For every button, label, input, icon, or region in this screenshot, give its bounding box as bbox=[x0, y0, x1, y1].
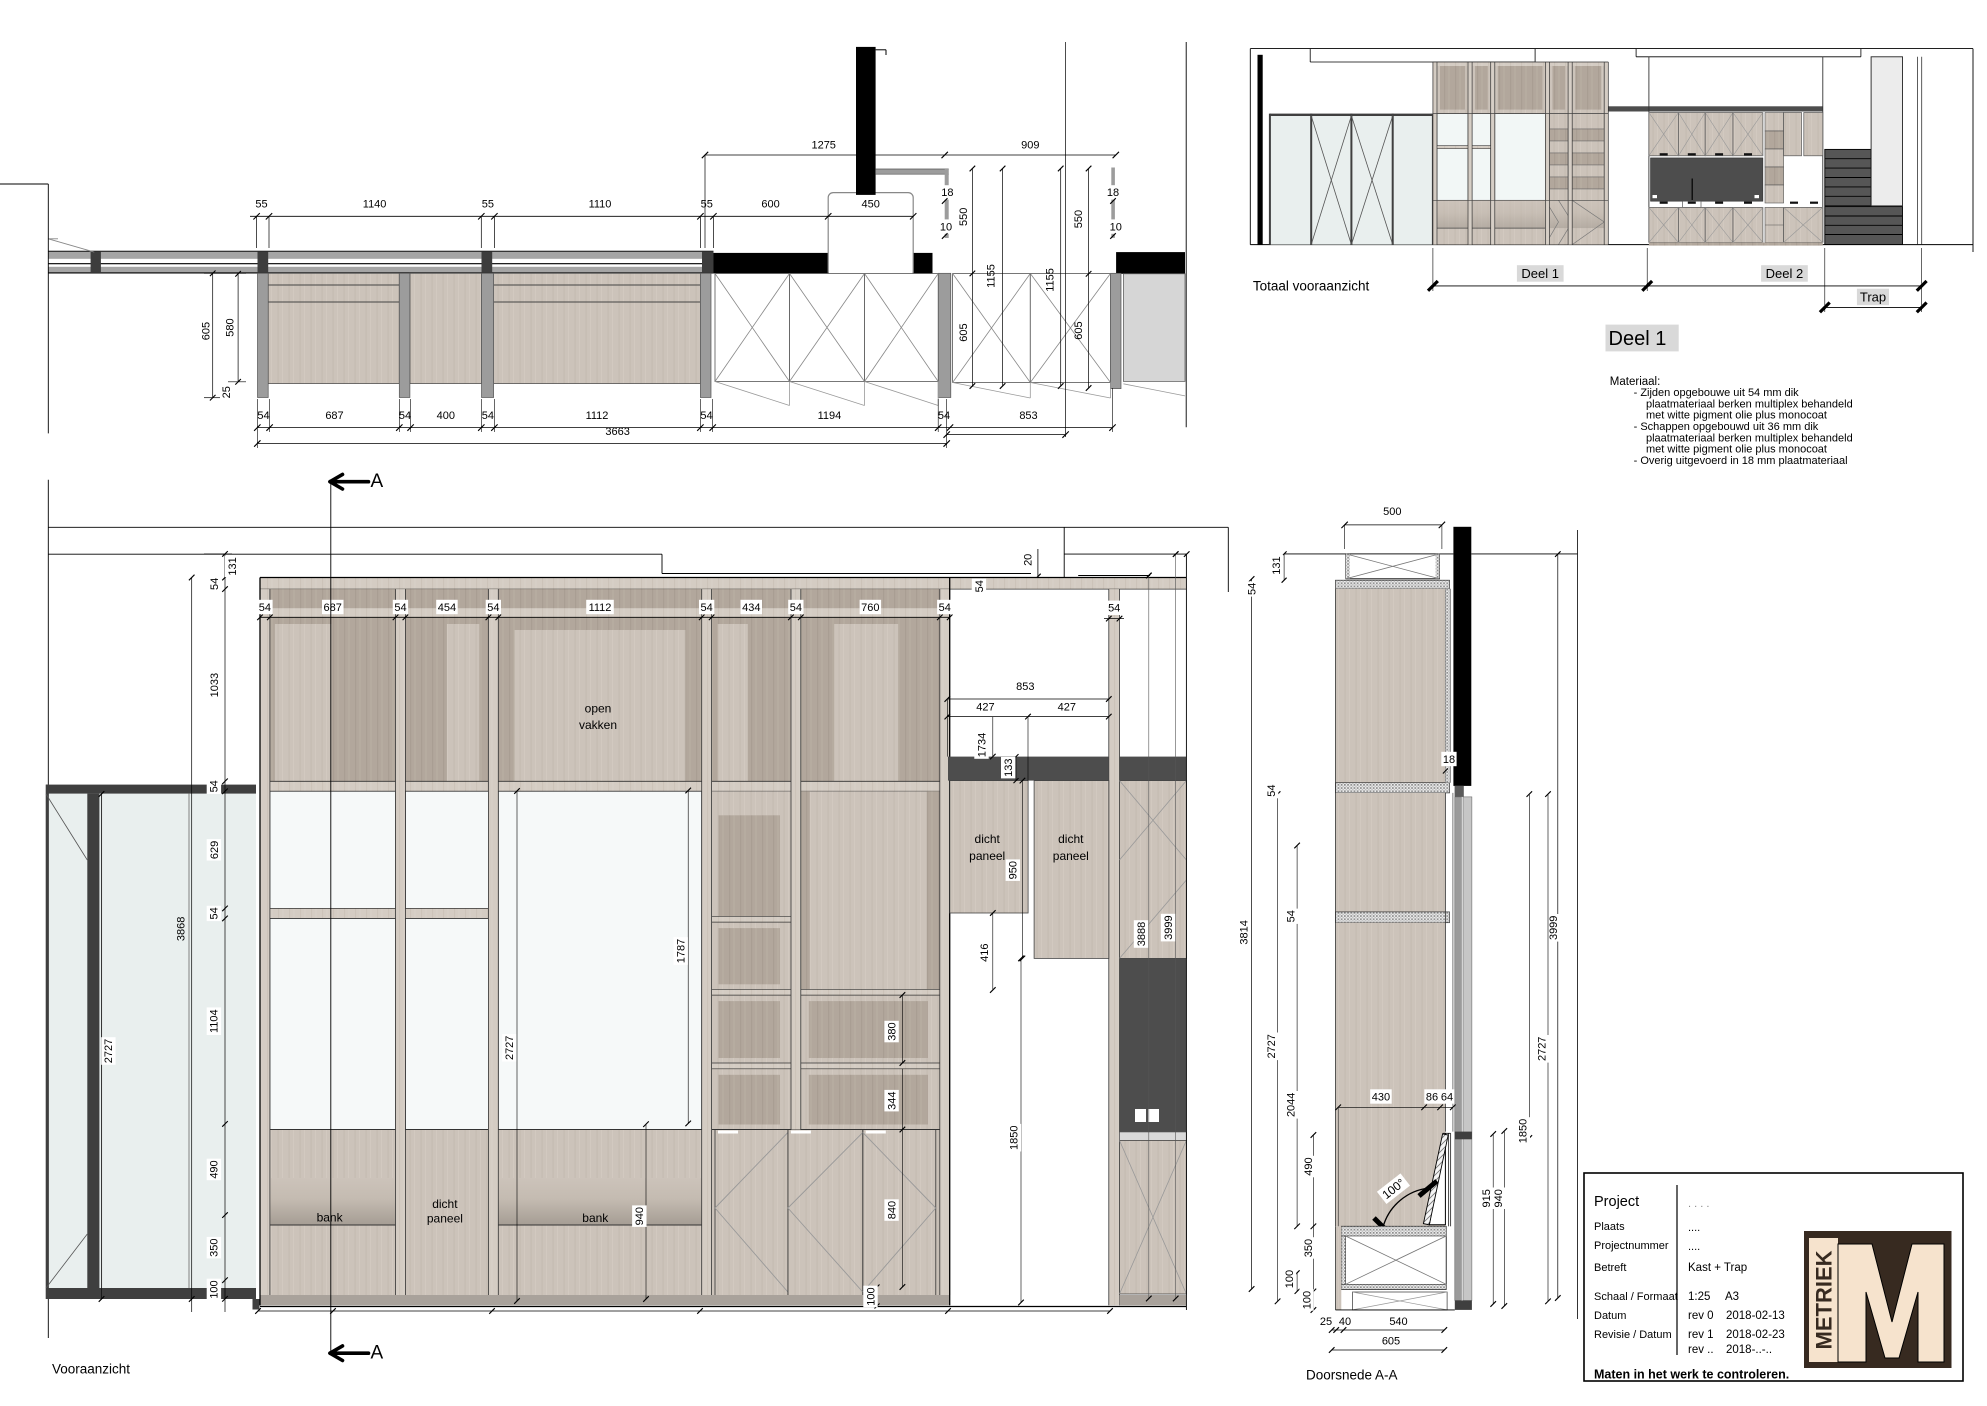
svg-text:....: .... bbox=[1688, 1222, 1700, 1234]
svg-text:bank: bank bbox=[582, 1211, 609, 1225]
svg-text:687: 687 bbox=[325, 410, 343, 422]
svg-text:350: 350 bbox=[209, 1239, 221, 1257]
svg-text:Deel 2: Deel 2 bbox=[1766, 266, 1804, 281]
svg-text:plaatmateriaal berken multiple: plaatmateriaal berken multiplex behandel… bbox=[1646, 432, 1853, 444]
svg-text:380: 380 bbox=[886, 1022, 898, 1040]
svg-text:54: 54 bbox=[259, 602, 271, 614]
svg-text:rev ..: rev .. bbox=[1688, 1344, 1714, 1356]
svg-text:rev 0: rev 0 bbox=[1688, 1310, 1714, 1322]
svg-text:853: 853 bbox=[1019, 410, 1037, 422]
svg-text:1275: 1275 bbox=[811, 139, 835, 151]
svg-text:3814: 3814 bbox=[1238, 920, 1250, 944]
svg-text:Plaats: Plaats bbox=[1594, 1221, 1625, 1233]
svg-text:met witte pigment olie plus mo: met witte pigment olie plus monocoat bbox=[1646, 444, 1827, 456]
svg-text:2727: 2727 bbox=[1266, 1034, 1278, 1058]
svg-text:18: 18 bbox=[1443, 754, 1455, 766]
svg-text:18: 18 bbox=[1107, 187, 1119, 199]
svg-text:629: 629 bbox=[209, 841, 221, 859]
svg-text:1110: 1110 bbox=[589, 198, 612, 210]
svg-text:54: 54 bbox=[209, 780, 221, 792]
svg-text:3868: 3868 bbox=[175, 917, 187, 941]
svg-text:2018-02-23: 2018-02-23 bbox=[1726, 1329, 1785, 1341]
svg-text:54: 54 bbox=[257, 410, 269, 422]
svg-text:450: 450 bbox=[862, 198, 880, 210]
svg-text:1734: 1734 bbox=[976, 733, 988, 757]
svg-text:25: 25 bbox=[221, 386, 233, 398]
svg-text:55: 55 bbox=[255, 198, 267, 210]
svg-text:687: 687 bbox=[324, 602, 342, 614]
svg-text:550: 550 bbox=[1073, 210, 1085, 228]
svg-text:2727: 2727 bbox=[103, 1039, 115, 1063]
svg-text:met witte pigment olie plus mo: met witte pigment olie plus monocoat bbox=[1646, 410, 1827, 422]
svg-text:Doorsnede A-A: Doorsnede A-A bbox=[1306, 1368, 1398, 1383]
svg-text:100: 100 bbox=[1284, 1270, 1296, 1288]
svg-text:427: 427 bbox=[976, 702, 994, 714]
svg-text:Deel 1: Deel 1 bbox=[1609, 328, 1667, 350]
svg-text:853: 853 bbox=[1016, 681, 1034, 693]
svg-text:400: 400 bbox=[437, 410, 455, 422]
svg-text:54: 54 bbox=[482, 410, 494, 422]
svg-text:454: 454 bbox=[438, 602, 456, 614]
svg-text:bank: bank bbox=[317, 1211, 344, 1225]
svg-text:paneel: paneel bbox=[969, 849, 1005, 863]
svg-text:64: 64 bbox=[1441, 1091, 1453, 1103]
svg-text:Schaal / Formaat: Schaal / Formaat bbox=[1594, 1291, 1678, 1303]
svg-text:dicht: dicht bbox=[975, 832, 1001, 846]
svg-text:600: 600 bbox=[761, 198, 779, 210]
svg-text:54: 54 bbox=[974, 580, 986, 592]
svg-text:54: 54 bbox=[1108, 603, 1120, 615]
svg-text:- Schappen opgebouwd uit 36 mm: - Schappen opgebouwd uit 36 mm dik bbox=[1634, 421, 1819, 433]
svg-text:1850: 1850 bbox=[1518, 1119, 1530, 1143]
svg-text:10: 10 bbox=[1110, 221, 1122, 233]
svg-text:40: 40 bbox=[1339, 1316, 1351, 1328]
svg-text:54: 54 bbox=[700, 410, 712, 422]
svg-text:344: 344 bbox=[886, 1092, 898, 1110]
svg-text:Trap: Trap bbox=[1860, 290, 1886, 305]
svg-text:840: 840 bbox=[886, 1201, 898, 1219]
svg-text:540: 540 bbox=[1389, 1316, 1407, 1328]
svg-text:940: 940 bbox=[634, 1207, 646, 1225]
svg-text:25: 25 bbox=[1320, 1316, 1332, 1328]
svg-text:A: A bbox=[371, 471, 384, 492]
svg-text:605: 605 bbox=[958, 323, 970, 341]
svg-text:54: 54 bbox=[700, 602, 712, 614]
svg-text:paneel: paneel bbox=[1053, 849, 1089, 863]
svg-text:3999: 3999 bbox=[1548, 916, 1560, 940]
svg-text:Betreft: Betreft bbox=[1594, 1262, 1626, 1274]
svg-text:54: 54 bbox=[1286, 910, 1298, 922]
svg-text:54: 54 bbox=[487, 602, 499, 614]
svg-text:1194: 1194 bbox=[818, 410, 842, 422]
svg-text:- Overig uitgevoerd in 18 mm p: - Overig uitgevoerd in 18 mm plaatmateri… bbox=[1634, 455, 1848, 467]
svg-text:20: 20 bbox=[1022, 554, 1034, 566]
svg-text:3663: 3663 bbox=[605, 426, 629, 438]
svg-text:dicht: dicht bbox=[432, 1197, 458, 1211]
svg-text:1:25: 1:25 bbox=[1688, 1291, 1710, 1303]
svg-text:A: A bbox=[371, 1343, 384, 1364]
svg-text:86: 86 bbox=[1426, 1091, 1438, 1103]
svg-text:Vooraanzicht: Vooraanzicht bbox=[52, 1362, 130, 1377]
svg-text:427: 427 bbox=[1058, 702, 1076, 714]
svg-text:55: 55 bbox=[701, 198, 713, 210]
svg-text:....: .... bbox=[1688, 1241, 1700, 1253]
svg-text:Kast + Trap: Kast + Trap bbox=[1688, 1262, 1747, 1274]
svg-text:2018-..-..: 2018-..-.. bbox=[1726, 1344, 1772, 1356]
svg-text:100: 100 bbox=[865, 1287, 877, 1305]
svg-text:METRIEK: METRIEK bbox=[1812, 1250, 1837, 1349]
svg-text:54: 54 bbox=[209, 907, 221, 919]
svg-text:54: 54 bbox=[399, 410, 411, 422]
svg-text:1033: 1033 bbox=[209, 673, 221, 697]
svg-text:1787: 1787 bbox=[676, 939, 688, 963]
svg-text:Project: Project bbox=[1594, 1194, 1639, 1210]
svg-text:54: 54 bbox=[1247, 583, 1259, 595]
svg-text:A3: A3 bbox=[1725, 1291, 1739, 1303]
svg-text:940: 940 bbox=[1493, 1189, 1505, 1207]
svg-text:54: 54 bbox=[1266, 784, 1278, 796]
svg-text:550: 550 bbox=[958, 208, 970, 226]
svg-text:580: 580 bbox=[224, 318, 236, 336]
svg-text:54: 54 bbox=[939, 602, 951, 614]
svg-text:2727: 2727 bbox=[504, 1036, 516, 1060]
svg-text:Datum: Datum bbox=[1594, 1310, 1626, 1322]
svg-text:760: 760 bbox=[861, 602, 879, 614]
svg-text:3888: 3888 bbox=[1136, 922, 1148, 946]
svg-text:Maten in het werk te controler: Maten in het werk te controleren. bbox=[1594, 1367, 1789, 1381]
svg-text:350: 350 bbox=[1303, 1239, 1315, 1257]
svg-text:dicht: dicht bbox=[1058, 832, 1084, 846]
svg-text:434: 434 bbox=[742, 602, 760, 614]
svg-text:950: 950 bbox=[1008, 861, 1020, 879]
svg-text:100: 100 bbox=[209, 1280, 221, 1298]
svg-text:1140: 1140 bbox=[363, 198, 387, 210]
svg-text:Projectnummer: Projectnummer bbox=[1594, 1240, 1669, 1252]
svg-text:54: 54 bbox=[938, 410, 950, 422]
svg-text:vakken: vakken bbox=[579, 718, 617, 732]
svg-text:909: 909 bbox=[1021, 139, 1039, 151]
svg-text:131: 131 bbox=[227, 557, 239, 575]
svg-text:2727: 2727 bbox=[1537, 1037, 1549, 1061]
svg-text:2044: 2044 bbox=[1285, 1093, 1297, 1117]
svg-text:490: 490 bbox=[209, 1160, 221, 1178]
svg-text:100: 100 bbox=[1301, 1291, 1313, 1309]
svg-text:10: 10 bbox=[940, 221, 952, 233]
svg-text:1155: 1155 bbox=[985, 264, 997, 288]
svg-text:54: 54 bbox=[394, 602, 406, 614]
svg-text:Revisie / Datum: Revisie / Datum bbox=[1594, 1329, 1672, 1341]
svg-text:133: 133 bbox=[1003, 759, 1015, 777]
svg-text:1104: 1104 bbox=[209, 1009, 221, 1033]
svg-text:1112: 1112 bbox=[589, 602, 612, 614]
svg-text:416: 416 bbox=[979, 944, 991, 962]
svg-text:open: open bbox=[585, 701, 612, 715]
svg-text:paneel: paneel bbox=[427, 1212, 463, 1226]
svg-text:131: 131 bbox=[1271, 556, 1283, 574]
svg-text:54: 54 bbox=[209, 578, 221, 590]
svg-text:. . . .: . . . . bbox=[1688, 1198, 1709, 1210]
svg-text:rev 1: rev 1 bbox=[1688, 1329, 1714, 1341]
svg-text:Totaal vooraanzicht: Totaal vooraanzicht bbox=[1253, 279, 1370, 294]
svg-text:55: 55 bbox=[482, 198, 494, 210]
svg-text:605: 605 bbox=[200, 322, 212, 340]
svg-text:- Zijden opgebouwe uit 54 mm d: - Zijden opgebouwe uit 54 mm dik bbox=[1634, 387, 1800, 399]
svg-text:490: 490 bbox=[1303, 1157, 1315, 1175]
svg-text:500: 500 bbox=[1383, 506, 1401, 518]
svg-text:54: 54 bbox=[790, 602, 802, 614]
svg-text:605: 605 bbox=[1073, 321, 1085, 339]
svg-text:2018-02-13: 2018-02-13 bbox=[1726, 1310, 1785, 1322]
svg-text:430: 430 bbox=[1372, 1091, 1390, 1103]
svg-text:605: 605 bbox=[1382, 1335, 1400, 1347]
svg-text:Deel 1: Deel 1 bbox=[1521, 266, 1559, 281]
svg-text:18: 18 bbox=[941, 187, 953, 199]
svg-text:1155: 1155 bbox=[1045, 268, 1057, 292]
svg-text:plaatmateriaal berken multiple: plaatmateriaal berken multiplex behandel… bbox=[1646, 398, 1853, 410]
svg-text:1112: 1112 bbox=[586, 410, 609, 422]
svg-text:1850: 1850 bbox=[1009, 1125, 1021, 1149]
svg-text:3999: 3999 bbox=[1163, 915, 1175, 939]
